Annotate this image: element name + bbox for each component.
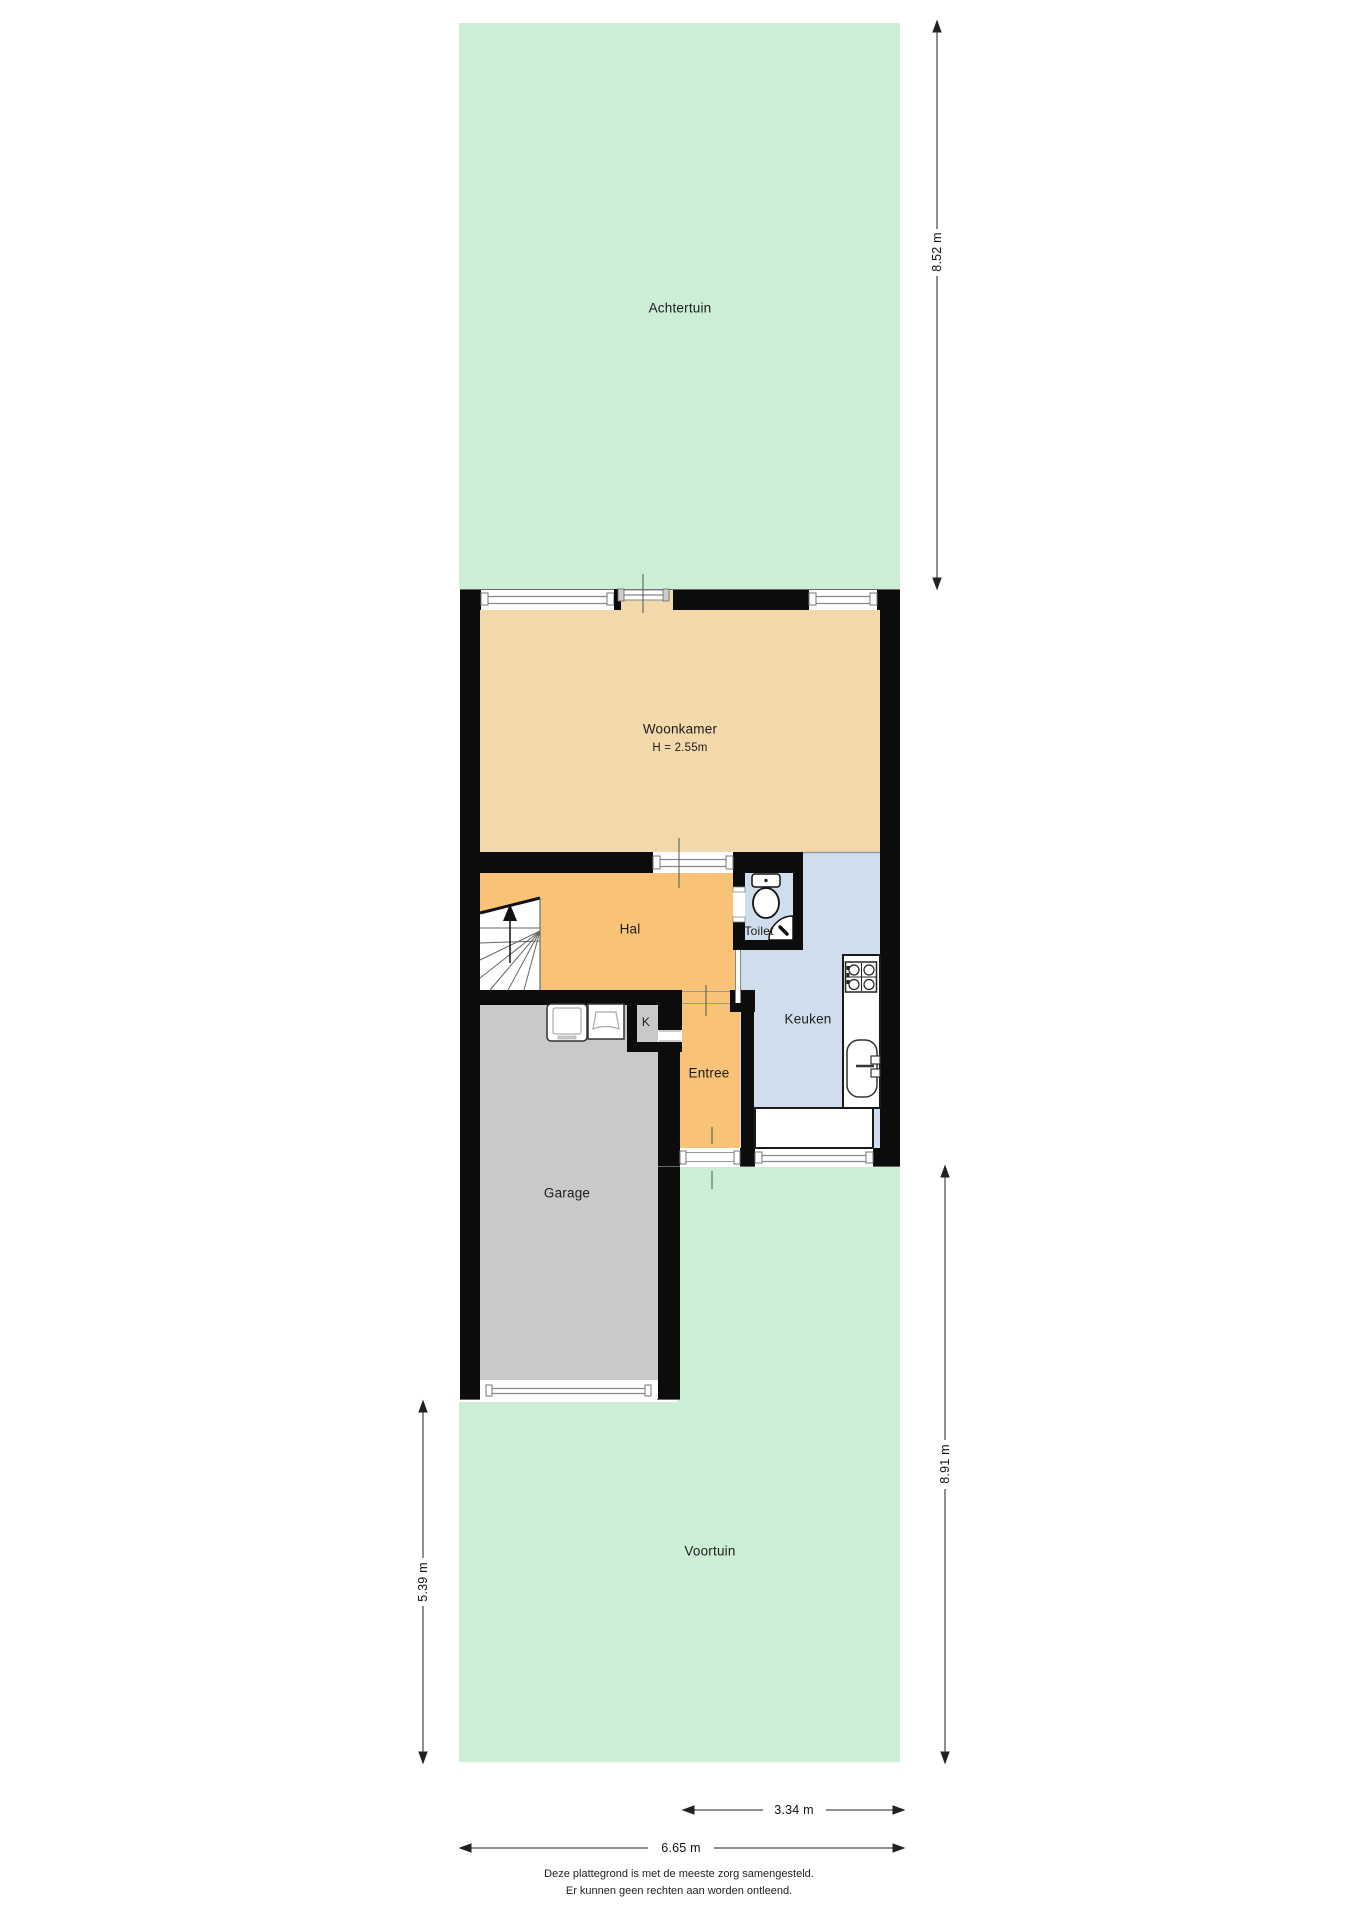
kast-wall-right [658, 1005, 682, 1030]
dimension-label-852: 8.52 m [930, 232, 944, 271]
wall-segment [873, 1148, 900, 1167]
wall-right-exterior [880, 589, 900, 1167]
window [809, 590, 877, 609]
dimension-label-891: 8.91 m [938, 1444, 952, 1483]
garage-door [480, 1380, 657, 1400]
dimension-label-665: 6.65 m [661, 1841, 700, 1855]
interior-partition [735, 950, 741, 1003]
kast-label: K [642, 1015, 650, 1029]
toilet-wall-left [733, 873, 745, 889]
toilet-wall-left [733, 920, 745, 950]
achtertuin-label: Achtertuin [649, 301, 712, 316]
wall-segment [673, 589, 809, 610]
kitchen-sink-icon [847, 1040, 880, 1097]
entree-label: Entree [689, 1066, 730, 1081]
wall-hal-garage [480, 990, 682, 1005]
washing-machine-icon [547, 1004, 587, 1041]
dimension-label-334: 3.34 m [774, 1803, 813, 1817]
window [755, 1148, 873, 1167]
keuken-floor-upper [803, 853, 880, 950]
kast-door [658, 1030, 682, 1042]
toilet-label: Toilet [744, 924, 773, 938]
wall-entree-keuken [741, 1003, 754, 1148]
wall-left-exterior [460, 589, 480, 1400]
keuken-label: Keuken [785, 1012, 832, 1027]
toilet-wall-right [793, 852, 803, 950]
toilet-icon [752, 874, 780, 918]
window [481, 590, 614, 609]
floorplan-page: Achtertuin Woonkamer H = 2.55m Hal Toile… [0, 0, 1358, 1920]
garage-label: Garage [544, 1186, 590, 1201]
disclaimer-line1: Deze plattegrond is met de meeste zorg s… [0, 1866, 1358, 1883]
wall-garage-entree [658, 1042, 680, 1400]
disclaimer-line2: Er kunnen geen rechten aan worden ontlee… [0, 1883, 1358, 1900]
front-door [680, 1148, 740, 1167]
wall-segment [460, 852, 653, 873]
hal-label: Hal [620, 922, 641, 937]
floorplan-drawing [0, 0, 1358, 1920]
voortuin-label: Voortuin [684, 1544, 735, 1559]
dimension-achtertuin-depth [933, 21, 941, 589]
dimension-label-539: 5.39 m [416, 1562, 430, 1601]
staircase [480, 898, 540, 990]
wall-segment [733, 852, 803, 873]
interior-window [653, 852, 733, 873]
toilet-door [733, 887, 745, 922]
laundry-tub-icon [588, 1004, 624, 1039]
wall-segment [740, 1148, 755, 1167]
woonkamer-label: Woonkamer [643, 722, 717, 737]
stove-icon [846, 962, 877, 992]
disclaimer: Deze plattegrond is met de meeste zorg s… [0, 1866, 1358, 1899]
woonkamer-height-note: H = 2.55m [652, 742, 707, 754]
